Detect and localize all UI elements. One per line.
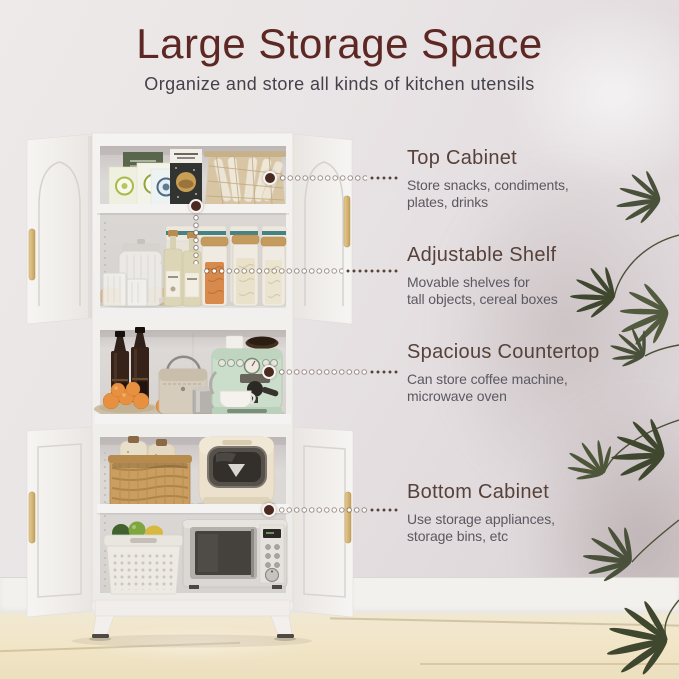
base-frame [95, 600, 290, 616]
marker-bottom-cabinet [262, 503, 276, 517]
product-infographic: Large Storage Space Organize and store a… [0, 0, 679, 679]
callout-description: Can store coffee machine, microwave oven [407, 371, 622, 405]
callout-description: Store snacks, condiments, plates, drinks [407, 177, 622, 211]
leader-line-top-cabinet-end [369, 176, 398, 180]
microwave-oven [183, 520, 287, 589]
callout-bottom-cabinet: Bottom Cabinet Use storage appliances, s… [407, 481, 622, 545]
marker-top-cabinet [263, 171, 277, 185]
top-left-door [27, 134, 92, 324]
bottom-shelf-board [97, 504, 289, 513]
callout-spacious-countertop: Spacious Countertop Can store coffee mac… [407, 341, 622, 405]
callout-top-cabinet: Top Cabinet Store snacks, condiments, pl… [407, 147, 622, 211]
wicker-basket [108, 455, 192, 506]
storage-bin [104, 535, 183, 594]
door-handle [29, 229, 35, 280]
counter-board [95, 414, 291, 424]
callout-heading: Adjustable Shelf [407, 244, 622, 267]
callout-heading: Bottom Cabinet [407, 481, 622, 504]
leader-line-top-cabinet [279, 175, 367, 181]
callout-heading: Spacious Countertop [407, 341, 622, 364]
marker-adjustable-shelf [189, 199, 203, 213]
granola-box [170, 149, 202, 205]
cabinet-scene [0, 0, 679, 679]
rice-cooker [199, 437, 274, 505]
marker-countertop [262, 365, 276, 379]
leader-line-countertop-end [369, 370, 398, 374]
door-handle [344, 196, 350, 247]
leader-line-adjustable-shelf [203, 268, 343, 274]
door-handle [29, 492, 35, 543]
leader-line-countertop [278, 369, 367, 375]
top-right-door [293, 134, 352, 324]
callout-description: Use storage appliances, storage bins, et… [407, 511, 622, 545]
leader-line-bottom-cabinet [278, 507, 367, 513]
leader-line-shelf-vertical [193, 214, 199, 264]
callout-adjustable-shelf: Adjustable Shelf Movable shelves for tal… [407, 244, 622, 308]
page-title: Large Storage Space [0, 20, 679, 68]
page-subtitle: Organize and store all kinds of kitchen … [0, 74, 679, 95]
callout-heading: Top Cabinet [407, 147, 622, 170]
leader-line-adjustable-shelf-end [345, 269, 398, 273]
callout-description: Movable shelves for tall objects, cereal… [407, 274, 622, 308]
door-handle [345, 492, 351, 543]
bottom-left-door [27, 427, 92, 617]
bottom-right-door [293, 427, 353, 617]
leader-line-bottom-cabinet-end [369, 508, 398, 512]
